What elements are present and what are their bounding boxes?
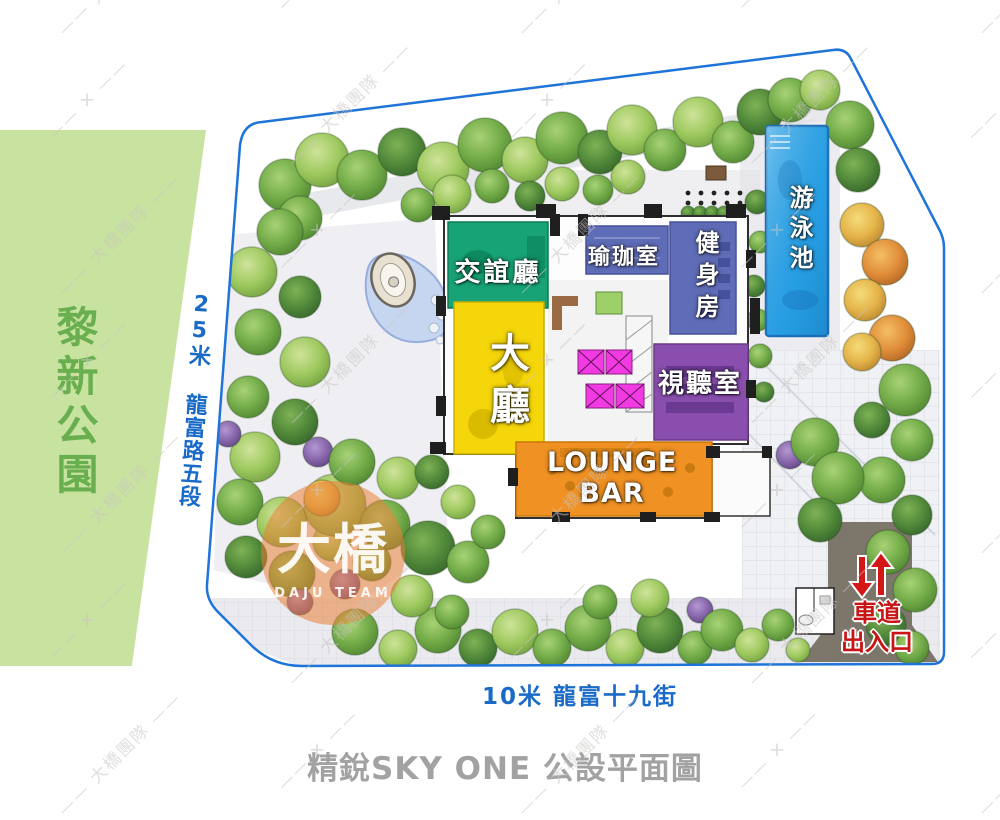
label-driveway-entrance: 車道 出入口 [822,599,932,658]
label-av-room: 視聽室 [630,363,770,400]
tree [892,495,932,535]
tree [836,148,880,192]
tree [269,551,315,597]
tree [279,276,321,318]
tree [225,536,267,578]
label-social-lounge: 交誼廳 [428,252,568,289]
tree [854,402,890,438]
tree [545,167,579,201]
tree [798,498,842,542]
tree [280,337,330,387]
tree [611,160,645,194]
tree [435,595,469,629]
plan-caption: 精銳SKY ONE 公設平面圖 [255,743,755,788]
tree [475,169,509,203]
tree [257,497,307,547]
tree [859,457,905,503]
label-lounge-bar: LOUNGE BAR [547,447,677,509]
tree [891,419,933,461]
tree [812,452,864,504]
tree [377,457,419,499]
tree [583,175,613,205]
tree [379,630,417,668]
label-gym: 健身房 [688,230,723,326]
tree [330,569,360,599]
tree [762,609,794,641]
tree [353,543,391,581]
tree [583,585,617,619]
tree [332,609,378,655]
tree [227,376,269,418]
tree [492,609,538,655]
label-swimming-pool: 游泳池 [782,185,817,275]
tree [862,239,908,285]
tree [844,279,886,321]
tree [287,589,313,615]
tree [441,485,475,519]
tree [786,638,810,662]
tree [631,579,669,617]
road-label-south: 10米 龍富十九街 [430,677,730,711]
site-plan-poster: 黎新公園 25米 龍富路五段 10米 龍富十九街 [0,0,1000,800]
tree [415,455,449,489]
tree [257,209,303,255]
tree [235,309,281,355]
tree [826,101,874,149]
planter [596,292,622,314]
tree [217,479,263,525]
terrace [712,452,770,516]
tree [843,333,881,371]
label-yoga-room: 瑜珈室 [554,239,694,271]
tree [391,575,433,617]
tree [304,480,340,516]
tree [459,629,497,667]
tree [471,515,505,549]
tree [401,188,435,222]
label-lobby: 大廳 [477,332,535,436]
tree [227,247,277,297]
tree [329,439,375,485]
tree [879,364,931,416]
tree [800,70,840,110]
